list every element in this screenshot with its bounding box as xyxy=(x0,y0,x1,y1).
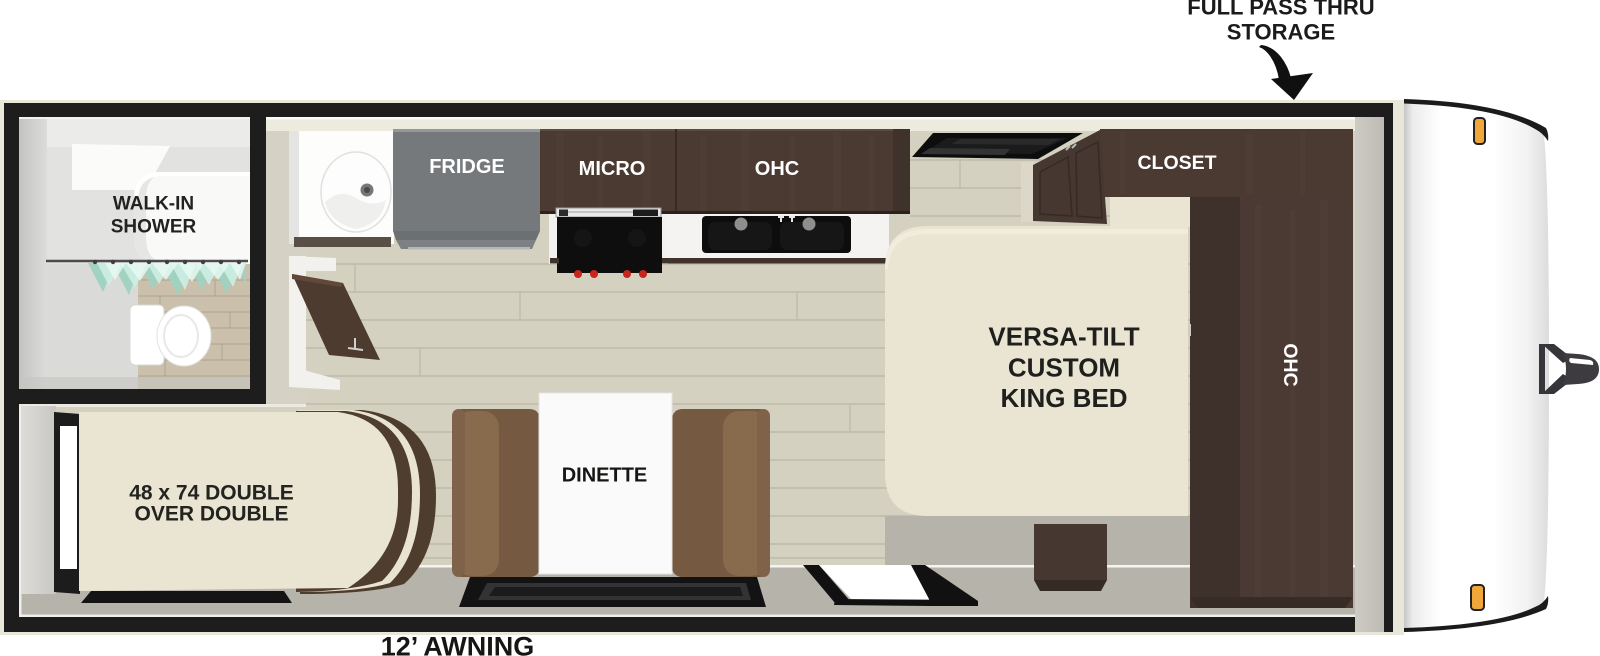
svg-text:SHOWER: SHOWER xyxy=(111,217,197,238)
svg-text:MICRO: MICRO xyxy=(579,158,646,180)
svg-text:12’ AWNING: 12’ AWNING xyxy=(381,632,535,656)
svg-text:OVER DOUBLE: OVER DOUBLE xyxy=(134,503,288,526)
svg-text:OHC: OHC xyxy=(1279,343,1301,386)
svg-text:KING BED: KING BED xyxy=(1000,383,1127,413)
svg-text:STORAGE: STORAGE xyxy=(1227,20,1335,45)
svg-text:WALK-IN: WALK-IN xyxy=(113,194,194,215)
svg-text:FULL PASS THRU: FULL PASS THRU xyxy=(1187,0,1374,20)
svg-text:48 x 74 DOUBLE: 48 x 74 DOUBLE xyxy=(129,482,294,505)
svg-text:DINETTE: DINETTE xyxy=(562,465,648,487)
svg-text:VERSA-TILT: VERSA-TILT xyxy=(988,322,1139,352)
svg-text:FRIDGE: FRIDGE xyxy=(429,156,505,178)
svg-text:CUSTOM: CUSTOM xyxy=(1008,353,1120,383)
svg-text:OHC: OHC xyxy=(755,158,799,180)
svg-text:CLOSET: CLOSET xyxy=(1137,152,1216,174)
